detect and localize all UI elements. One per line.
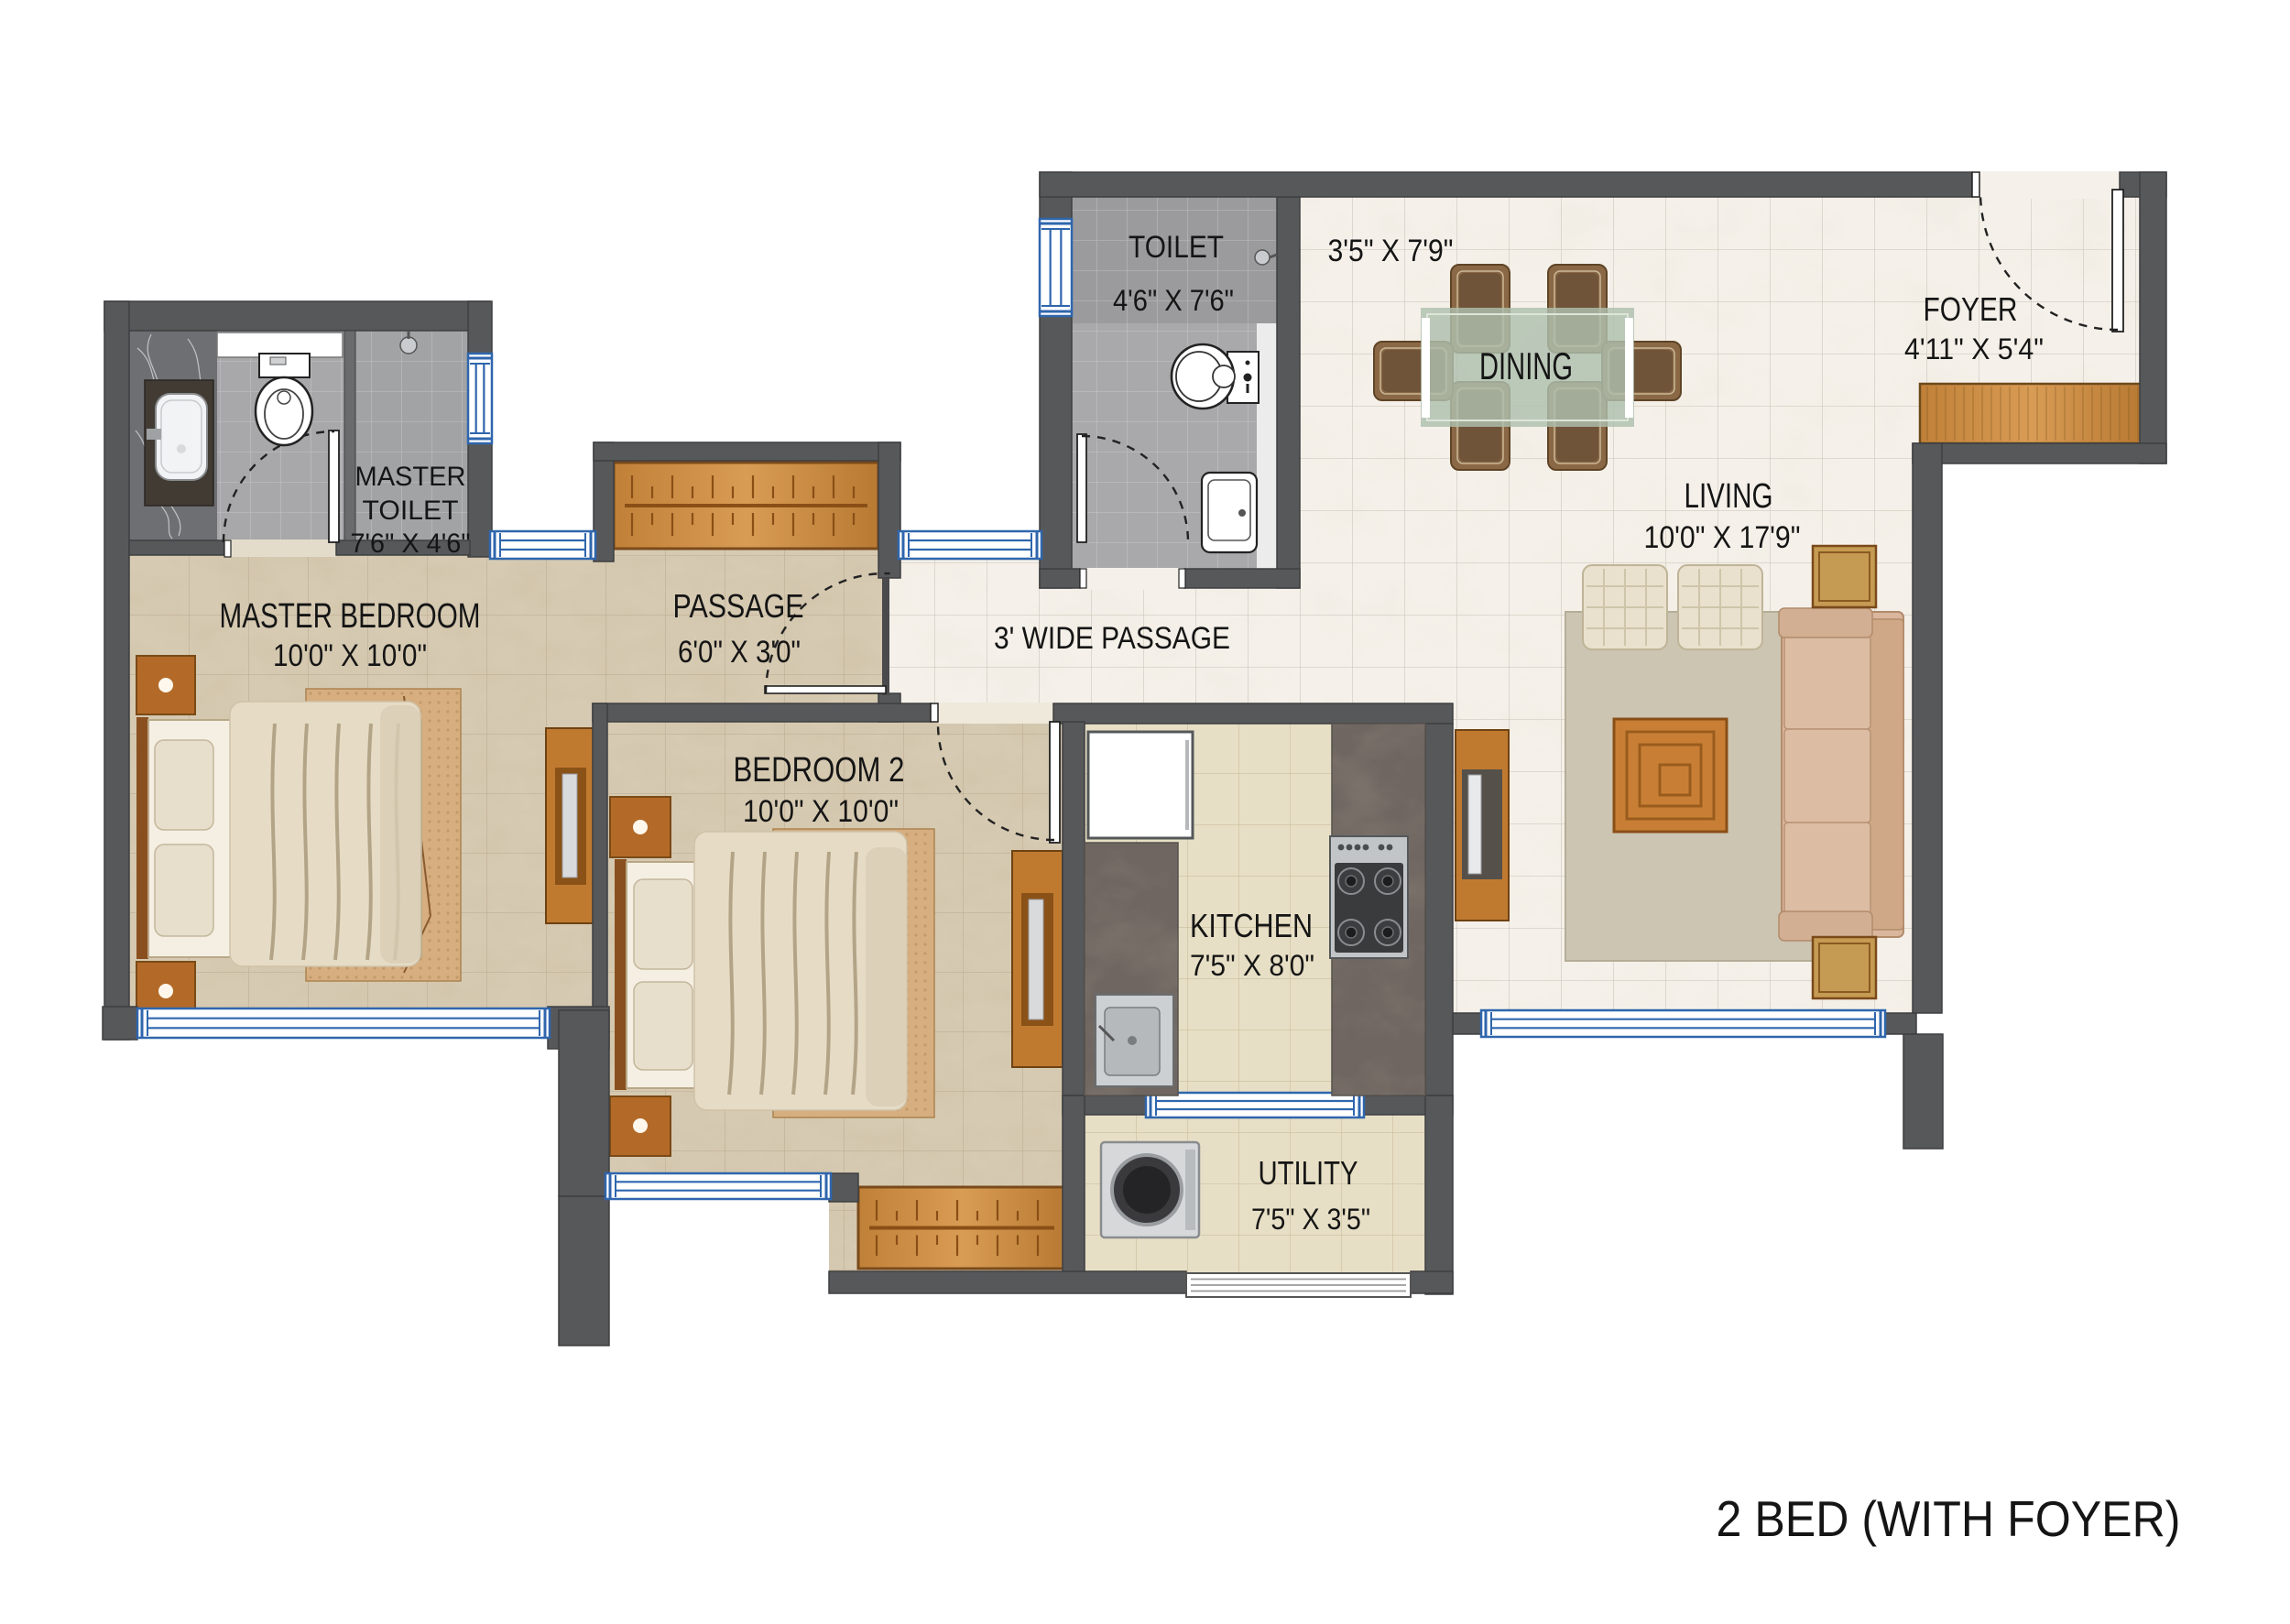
svg-text:DINING: DINING — [1479, 344, 1573, 387]
svg-text:FOYER: FOYER — [1924, 290, 2018, 328]
svg-text:7'5" X 3'5": 7'5" X 3'5" — [1251, 1203, 1370, 1236]
svg-text:MASTER: MASTER — [355, 462, 466, 492]
svg-text:6'0" X 3'0": 6'0" X 3'0" — [678, 635, 801, 670]
svg-text:PASSAGE: PASSAGE — [673, 587, 804, 625]
svg-text:10'0" X 17'9": 10'0" X 17'9" — [1644, 520, 1801, 555]
svg-text:3' WIDE PASSAGE: 3' WIDE PASSAGE — [994, 621, 1230, 656]
svg-text:7'5" X 8'0": 7'5" X 8'0" — [1190, 949, 1314, 982]
svg-text:KITCHEN: KITCHEN — [1190, 907, 1313, 944]
svg-text:7'6" X 4'6": 7'6" X 4'6" — [351, 529, 471, 559]
svg-text:2 BED (WITH FOYER): 2 BED (WITH FOYER) — [1717, 1490, 2181, 1547]
svg-text:TOILET: TOILET — [1129, 230, 1224, 265]
svg-text:10'0" X 10'0": 10'0" X 10'0" — [743, 794, 899, 829]
svg-text:3'5" X 7'9": 3'5" X 7'9" — [1328, 234, 1454, 268]
svg-text:TOILET: TOILET — [363, 496, 459, 526]
svg-text:LIVING: LIVING — [1685, 477, 1773, 516]
svg-text:4'11" X 5'4": 4'11" X 5'4" — [1904, 332, 2044, 365]
svg-text:BEDROOM 2: BEDROOM 2 — [734, 751, 905, 790]
svg-text:10'0" X 10'0": 10'0" X 10'0" — [273, 638, 427, 673]
svg-text:UTILITY: UTILITY — [1259, 1154, 1358, 1192]
svg-text:MASTER BEDROOM: MASTER BEDROOM — [220, 597, 481, 636]
svg-text:4'6" X 7'6": 4'6" X 7'6" — [1113, 284, 1234, 317]
